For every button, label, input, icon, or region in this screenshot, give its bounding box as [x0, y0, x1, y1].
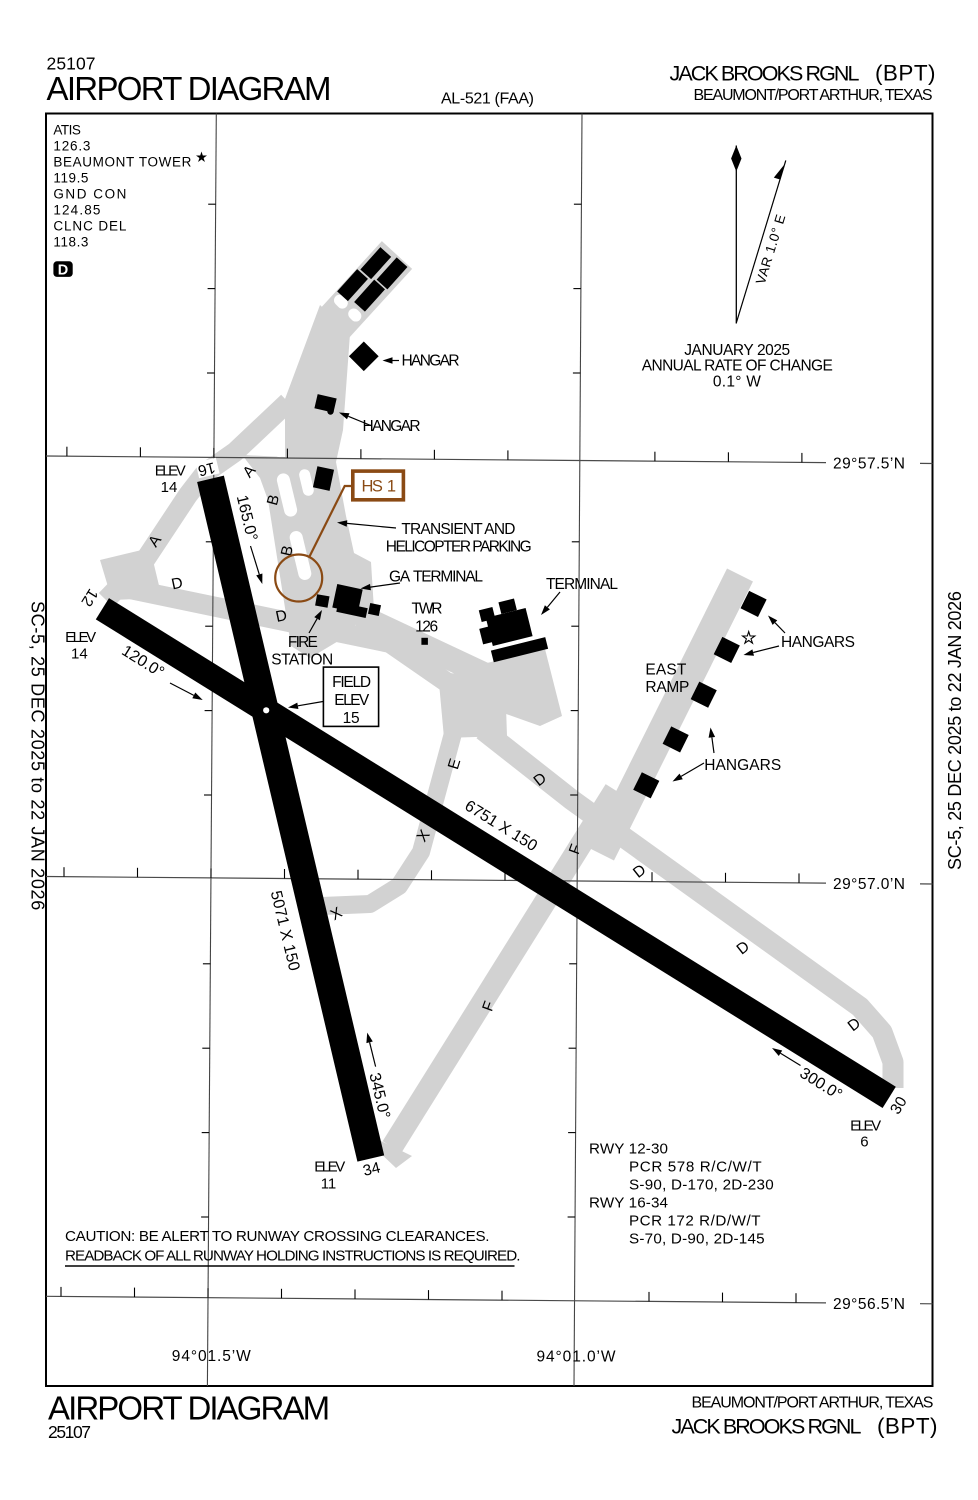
svg-text:ELEV: ELEV: [314, 1159, 345, 1176]
svg-text:ELEV: ELEV: [155, 463, 186, 480]
svg-text:BEAUMONT TOWER: BEAUMONT TOWER: [53, 154, 192, 169]
svg-text:RWY 16-34: RWY 16-34: [589, 1195, 668, 1212]
svg-text:SC-5, 25 DEC 2025 to 22 JAN: SC-5, 25 DEC 2025 to 22 JAN 2026: [945, 591, 965, 870]
svg-text:RWY 12-30: RWY 12-30: [589, 1141, 668, 1158]
svg-text:14: 14: [71, 645, 88, 662]
svg-text:AIRPORT DIAGRAM: AIRPORT DIAGRAM: [48, 1389, 328, 1426]
svg-text:126: 126: [415, 619, 437, 636]
svg-text:94°01.0’W: 94°01.0’W: [537, 1349, 617, 1366]
svg-text:CAUTION: BE ALERT TO RUNWAY C: CAUTION: BE ALERT TO RUNWAY CROSSING CLE…: [65, 1228, 489, 1245]
svg-text:0.1° W: 0.1° W: [713, 373, 761, 390]
svg-text:124.85: 124.85: [53, 203, 101, 218]
svg-text:EAST: EAST: [645, 662, 687, 679]
svg-text:ATIS: ATIS: [53, 122, 80, 137]
svg-text:6: 6: [860, 1134, 868, 1151]
svg-text:BEAUMONT/PORT ARTHUR, TEXAS: BEAUMONT/PORT ARTHUR, TEXAS: [692, 1395, 933, 1412]
svg-text:TWR: TWR: [411, 601, 442, 618]
svg-text:25107: 25107: [48, 1422, 90, 1442]
svg-text:29°56.5’N: 29°56.5’N: [833, 1296, 905, 1313]
svg-text:HANGAR: HANGAR: [363, 418, 421, 435]
svg-text:FIELD: FIELD: [332, 674, 371, 691]
svg-text:126.3: 126.3: [53, 138, 91, 153]
svg-text:JANUARY 2025: JANUARY 2025: [684, 342, 790, 359]
svg-text:D: D: [58, 262, 68, 278]
svg-text:S-90, D-170, 2D-230: S-90, D-170, 2D-230: [629, 1177, 774, 1194]
svg-text:TRANSIENT AND: TRANSIENT AND: [401, 521, 515, 538]
svg-text:JACK BROOKS RGNL: JACK BROOKS RGNL: [670, 62, 860, 86]
svg-text:BEAUMONT/PORT ARTHUR, TEXAS: BEAUMONT/PORT ARTHUR, TEXAS: [694, 87, 932, 104]
svg-text:FIRE: FIRE: [288, 634, 318, 651]
svg-text:14: 14: [161, 479, 178, 496]
svg-text:ELEV: ELEV: [334, 692, 370, 709]
svg-text:AL-521 (FAA): AL-521 (FAA): [441, 91, 534, 108]
svg-text:PCR 172 R/D/W/T: PCR 172 R/D/W/T: [629, 1213, 761, 1230]
svg-text:(BPT): (BPT): [877, 1414, 938, 1439]
svg-text:119.5: 119.5: [53, 171, 89, 186]
svg-text:94°01.5’W: 94°01.5’W: [172, 1348, 252, 1365]
svg-text:JACK BROOKS RGNL: JACK BROOKS RGNL: [672, 1415, 862, 1439]
svg-text:HANGARS: HANGARS: [781, 634, 855, 651]
svg-text:S-70, D-90, 2D-145: S-70, D-90, 2D-145: [629, 1231, 765, 1248]
svg-text:HANGARS: HANGARS: [704, 757, 781, 774]
svg-text:ANNUAL RATE OF CHANGE: ANNUAL RATE OF CHANGE: [642, 358, 833, 375]
svg-text:STATION: STATION: [271, 652, 333, 669]
svg-text:11: 11: [321, 1176, 337, 1193]
svg-text:29°57.5’N: 29°57.5’N: [833, 456, 905, 473]
svg-text:15: 15: [343, 710, 360, 727]
svg-text:HS 1: HS 1: [362, 478, 396, 496]
svg-text:GND CON: GND CON: [53, 187, 128, 202]
svg-text:PCR 578 R/C/W/T: PCR 578 R/C/W/T: [629, 1159, 762, 1176]
svg-text:TERMINAL: TERMINAL: [546, 576, 618, 593]
svg-text:HANGAR: HANGAR: [402, 353, 460, 370]
svg-text:ELEV: ELEV: [850, 1118, 881, 1135]
svg-text:(BPT): (BPT): [875, 61, 936, 86]
svg-text:RAMP: RAMP: [645, 679, 689, 696]
svg-text:GA TERMINAL: GA TERMINAL: [389, 569, 483, 586]
svg-text:HELICOPTER PARKING: HELICOPTER PARKING: [386, 539, 531, 556]
svg-text:29°57.0’N: 29°57.0’N: [833, 876, 905, 893]
svg-text:CLNC DEL: CLNC DEL: [53, 219, 127, 234]
svg-text:AIRPORT DIAGRAM: AIRPORT DIAGRAM: [47, 70, 330, 107]
svg-text:READBACK OF ALL RUNWAY HOLDING: READBACK OF ALL RUNWAY HOLDING INSTRUCTI…: [65, 1248, 520, 1265]
svg-text:ELEV: ELEV: [65, 629, 96, 646]
svg-text:118.3: 118.3: [53, 235, 89, 250]
svg-text:SC-5, 25 DEC 2025 to 22 JAN: SC-5, 25 DEC 2025 to 22 JAN 2026: [28, 601, 48, 911]
